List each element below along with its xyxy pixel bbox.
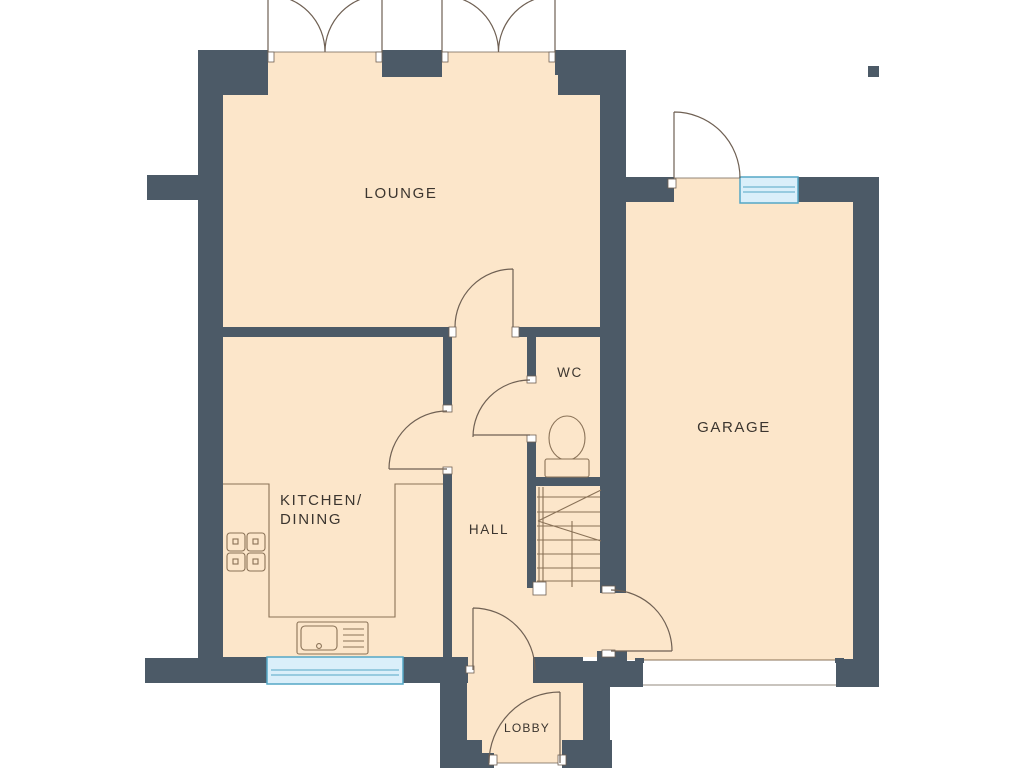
jamb xyxy=(376,52,382,62)
jamb xyxy=(442,52,448,62)
wc-bottom-wall xyxy=(536,477,600,486)
garage-label: GARAGE xyxy=(697,419,771,436)
french-door-sill-right xyxy=(442,52,555,75)
kitchen-label-line2: DINING xyxy=(280,511,342,528)
lobby-left-wall xyxy=(440,683,467,753)
site-marker-square xyxy=(868,66,879,77)
wall-segment xyxy=(382,50,442,77)
jamb xyxy=(527,435,536,442)
party-wall-stub-top xyxy=(147,175,198,200)
garage-door-jamb xyxy=(635,658,644,663)
bottom-wall-mid xyxy=(403,657,468,683)
jamb xyxy=(268,52,274,62)
jamb xyxy=(558,755,566,765)
garage-right-wall xyxy=(853,177,879,687)
jamb xyxy=(489,755,497,765)
hall-garage-doorway-floor xyxy=(600,593,626,651)
jamb xyxy=(443,467,452,474)
lounge-hall-wall xyxy=(513,327,600,337)
garage-window-glass xyxy=(740,177,798,203)
garage-side-door xyxy=(674,112,740,178)
kitchen-label-line1: KITCHEN/ xyxy=(280,492,363,509)
wall-segment xyxy=(558,75,600,95)
garage-top-wall-left xyxy=(625,177,674,202)
floor-plan-canvas: LOUNGE GARAGE WC HALL KITCHEN/ DINING LO… xyxy=(0,0,1024,768)
wall-segment xyxy=(562,740,612,768)
wall-segment xyxy=(467,740,482,753)
wall-segment xyxy=(440,753,494,768)
jamb xyxy=(512,327,519,337)
garage-door-jamb xyxy=(835,658,844,663)
lounge-label: LOUNGE xyxy=(365,185,438,202)
bottom-wall-right xyxy=(533,657,583,683)
jamb xyxy=(449,327,456,337)
kitchen-hall-wall-lower xyxy=(443,469,452,657)
jamb xyxy=(668,179,676,188)
lobby-right-wall xyxy=(583,687,610,740)
wc-label: WC xyxy=(557,365,583,380)
lounge-garage-wall xyxy=(600,50,626,593)
kitchen-window xyxy=(267,657,403,684)
stair-newel-post xyxy=(533,582,546,595)
french-doors-left xyxy=(268,0,382,52)
wall-segment xyxy=(583,661,643,687)
french-door-sill-left xyxy=(268,52,382,75)
garage-window xyxy=(740,177,798,203)
jamb xyxy=(549,52,555,62)
lounge-kitchen-wall xyxy=(223,327,455,337)
lobby-label: LOBBY xyxy=(504,721,550,735)
wall-segment xyxy=(836,659,879,687)
wall-segment xyxy=(223,75,268,95)
floor-plan: LOUNGE GARAGE WC HALL KITCHEN/ DINING LO… xyxy=(0,0,1024,768)
toilet-cistern xyxy=(545,459,589,477)
bottom-wall-left xyxy=(198,657,267,683)
kitchen-hall-wall-upper xyxy=(443,337,452,412)
french-doors-right xyxy=(442,0,555,52)
left-exterior-wall xyxy=(198,50,223,683)
wc-stairs-wall xyxy=(527,437,536,588)
party-wall-stub-bottom xyxy=(145,658,198,683)
garage-side-doorway-floor xyxy=(674,178,740,202)
hall-label: HALL xyxy=(469,522,509,537)
